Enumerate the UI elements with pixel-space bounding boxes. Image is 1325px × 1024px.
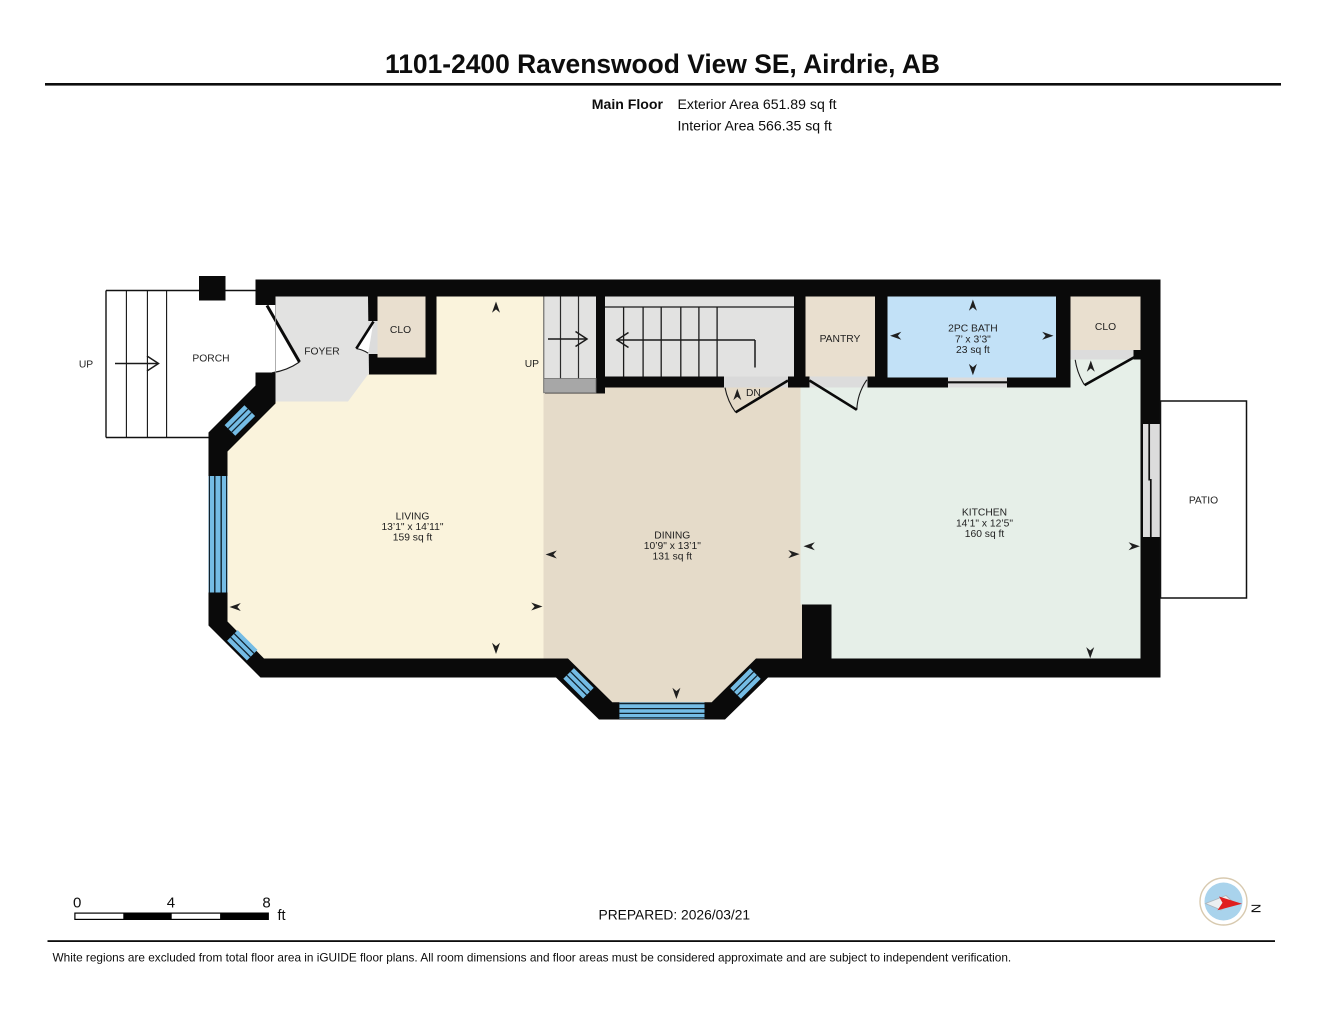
svg-text:KITCHEN: KITCHEN	[962, 508, 1007, 519]
svg-text:8: 8	[262, 895, 270, 912]
svg-text:23 sq ft: 23 sq ft	[956, 345, 990, 356]
svg-text:Main Floor: Main Floor	[592, 96, 664, 112]
svg-text:UP: UP	[525, 359, 539, 370]
svg-text:7’ x 3’3": 7’ x 3’3"	[955, 334, 991, 345]
svg-text:2PC BATH: 2PC BATH	[948, 324, 998, 335]
svg-text:160 sq ft: 160 sq ft	[965, 529, 1005, 540]
svg-text:N: N	[1249, 904, 1264, 913]
svg-text:159 sq ft: 159 sq ft	[393, 533, 433, 544]
svg-text:FOYER: FOYER	[304, 347, 339, 358]
svg-text:DN: DN	[746, 388, 761, 399]
svg-text:0: 0	[73, 895, 81, 912]
svg-text:PANTRY: PANTRY	[820, 334, 861, 345]
svg-text:UP: UP	[79, 360, 93, 371]
svg-text:PREPARED: 2026/03/21: PREPARED: 2026/03/21	[599, 908, 751, 923]
svg-text:White regions are excluded fro: White regions are excluded from total fl…	[53, 950, 1012, 964]
svg-text:10’9" x 13’1": 10’9" x 13’1"	[644, 541, 701, 552]
svg-text:14’1" x 12’5": 14’1" x 12’5"	[956, 518, 1013, 529]
svg-text:CLO: CLO	[390, 325, 411, 336]
svg-text:PORCH: PORCH	[192, 354, 229, 365]
svg-text:Interior Area 566.35 sq ft: Interior Area 566.35 sq ft	[678, 117, 832, 133]
svg-text:CLO: CLO	[1095, 322, 1116, 333]
svg-text:4: 4	[167, 895, 175, 912]
svg-text:1101-2400 Ravenswood View SE,: 1101-2400 Ravenswood View SE, Airdrie, A…	[385, 49, 940, 79]
svg-text:131 sq ft: 131 sq ft	[653, 552, 693, 563]
svg-text:LIVING: LIVING	[396, 511, 430, 522]
svg-text:DINING: DINING	[654, 530, 690, 541]
svg-text:PATIO: PATIO	[1189, 496, 1218, 507]
svg-text:Exterior Area 651.89 sq ft: Exterior Area 651.89 sq ft	[678, 96, 837, 112]
svg-text:13’1" x 14’11": 13’1" x 14’11"	[381, 522, 443, 533]
svg-text:ft: ft	[278, 908, 286, 924]
